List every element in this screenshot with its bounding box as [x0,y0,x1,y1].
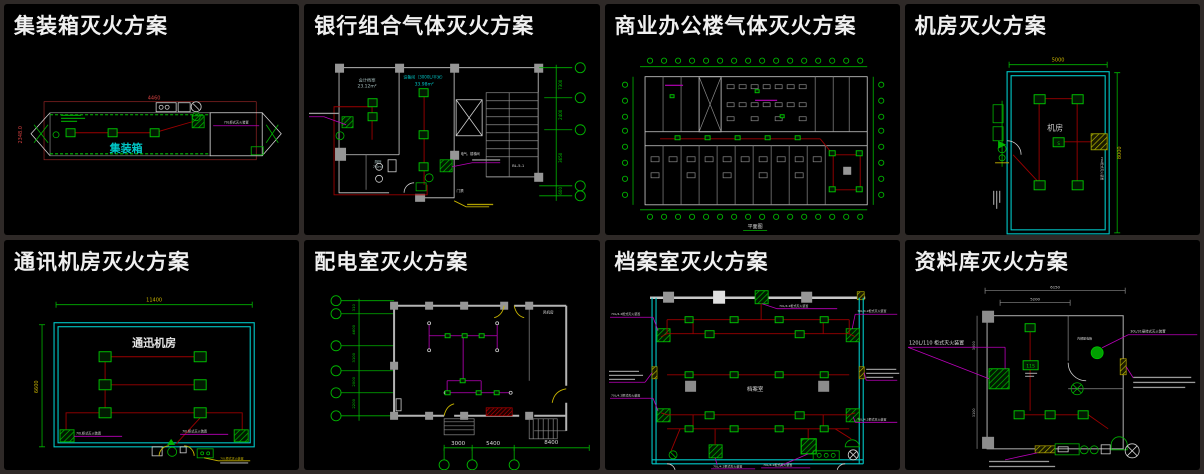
note-label: 70L柜式灭火装置 [220,455,244,460]
panel-title: 资料库灭火方案 [915,246,1069,276]
device-label-right: 70L柜式灭火装置 [182,428,207,433]
shaft-label: 电气、楼梯间 [461,151,480,156]
plan-caption: 平面图 [747,224,762,230]
cabinet-label: 120L/110 柜式灭火装置 [909,339,964,346]
device-label-left: 70L柜式灭火装置 [76,430,101,435]
room1-name: 会计档案 [359,77,377,84]
dim-left: 2200 [351,398,356,408]
dim-left: 3100 [351,352,356,362]
hanging-label: 30L/31悬挂式灭火装置 [1130,328,1166,333]
stair-label: BL-5-1 [512,163,525,168]
panel-title: 机房灭火方案 [915,10,1047,40]
axis-grid: 7300 2400 3650 600 [539,63,585,201]
axis-dim: 600 [558,187,563,195]
room3-name: 厕所 [375,159,383,164]
cabinet-device: 120L/110 柜式灭火装置 [908,339,1009,388]
room3-area: 7.0m² [373,165,384,169]
dim-left: 6600 [34,380,40,393]
nozzle-label: 11S [1026,363,1035,369]
walls [650,290,865,469]
hanging-device: 内部配电箱 30L/31悬挂式灭火装置 [1077,328,1197,358]
dim-top: 4460 [148,96,161,102]
dim-left: 4600 [351,324,356,334]
panel-data-library-plan: 资料库灭火方案 6150 5200 3000 3100 [905,240,1200,471]
bottom-devices [1055,436,1139,457]
dim-top-inner: 5200 [1030,296,1040,301]
dim-bottom: 5400 [486,440,500,446]
room-outline [1007,72,1109,234]
panel-office-gas-plan: 商业办公楼气体灭火方案 [605,4,900,235]
piping-and-nozzles [661,303,855,450]
s-nozzle-glyph: S [1057,141,1060,146]
panel-archive-room-plan: 档案室灭火方案 [605,240,900,471]
room2-name: 设备间（3000L/平米） [403,74,445,80]
walls: 风机房 [390,301,566,430]
room-label: 风机房 [543,309,554,314]
panel-power-room-plan: 配电室灭火方案 310 4600 3100 2000 2200 [304,240,599,471]
room-label: 集装箱 [109,141,143,155]
axis-dim: 2400 [558,109,563,120]
dim-right: 8000 [1117,146,1123,159]
label-bottom-right: 70L/4.2柜式灭火装置 [763,461,792,466]
piping-and-nozzles [53,115,192,138]
caption-group: 平面图 [743,224,767,231]
label-bottom-left: 70L/4.2柜式灭火装置 [713,463,742,468]
dim-left: 2348.0 [18,126,24,143]
label-left-top: 70L/4.2柜式灭火装置 [611,311,640,316]
panel-title: 配电室灭火方案 [314,246,468,276]
hatch-devices [652,328,864,457]
piping-magenta [428,321,513,394]
piping-and-nozzles [60,351,248,443]
room-label: 通迅机房 [132,335,176,349]
dim-left: 310 [351,303,356,311]
piping-and-nozzles: S 70L柜式灭火装置 [1013,95,1107,190]
dim-left: 2000 [351,376,356,386]
cad-plan-gallery: 集装箱灭火方案 4460 2348.0 70L柜式灭火装置 [0,0,1204,474]
dim-bottom: 3000 [451,440,465,446]
panel-title: 档案室灭火方案 [615,246,769,276]
panel-title: 集装箱灭火方案 [14,10,168,40]
panel-bank-gas-plan: 银行组合气体灭火方案 [304,4,599,235]
door-label: 门禁 [457,188,465,193]
axis-bottom: 3000 5400 8400 [439,439,589,469]
device-room: 70L柜式灭火装置 [192,116,263,155]
dim-bottom: 8400 [544,439,558,445]
panel-title: 商业办公楼气体灭火方案 [615,10,857,40]
desk-grid-top [727,85,806,121]
panel-title: 通讯机房灭火方案 [14,246,190,276]
dim-left-lower: 3100 [972,408,976,417]
device-label: 70L柜式灭火装置 [1100,157,1105,181]
room-labels: 会计档案 23.12m² 设备间（3000L/平米） 33.98m² 厕所 7.… [358,74,525,193]
piping-and-nozzles: 11S [1014,323,1108,428]
room1-area: 23.12m² [358,84,377,90]
axis-left: 310 4600 3100 2000 2200 [331,295,394,420]
room2-area: 33.98m² [415,82,434,88]
room-label: 档案室 [746,384,763,392]
label-top: 70L/4.2柜式灭火装置 [779,303,808,308]
device-label: 70L柜式灭火装置 [224,120,249,125]
panel-machine-room-plan: 机房灭火方案 5000 8000 [905,4,1200,235]
dim-left-upper: 3000 [972,341,976,350]
label-right-top: 70L/4.2柜式灭火装置 [857,308,886,313]
box-label: 内部配电箱 [1077,335,1092,340]
panel-container-plan: 集装箱灭火方案 4460 2348.0 70L柜式灭火装置 [4,4,299,235]
columns-and-devices [669,380,859,459]
label-right-bottom: 70L/4.2柜式灭火装置 [857,416,886,421]
building-walls [645,77,867,205]
panel-comm-room-plan: 通讯机房灭火方案 11400 6600 [4,240,299,471]
panel-title: 银行组合气体灭火方案 [314,10,534,40]
office-rooms-bottom [651,146,825,205]
dim-top: 11400 [146,297,162,303]
piping-and-nozzles [660,85,862,192]
room-label: 机房 [1047,123,1063,133]
dim-top-outer: 6150 [1050,284,1060,289]
label-left-bottom: 70L/4.2柜式灭火装置 [611,392,640,397]
axis-dim: 7300 [558,79,563,90]
axis-dim: 3650 [558,152,563,163]
dim-top: 5000 [1052,58,1065,64]
dimensions: 11400 6600 [34,297,252,446]
device-labels: 70L柜式灭火装置 70L柜式灭火装置 [74,428,228,436]
